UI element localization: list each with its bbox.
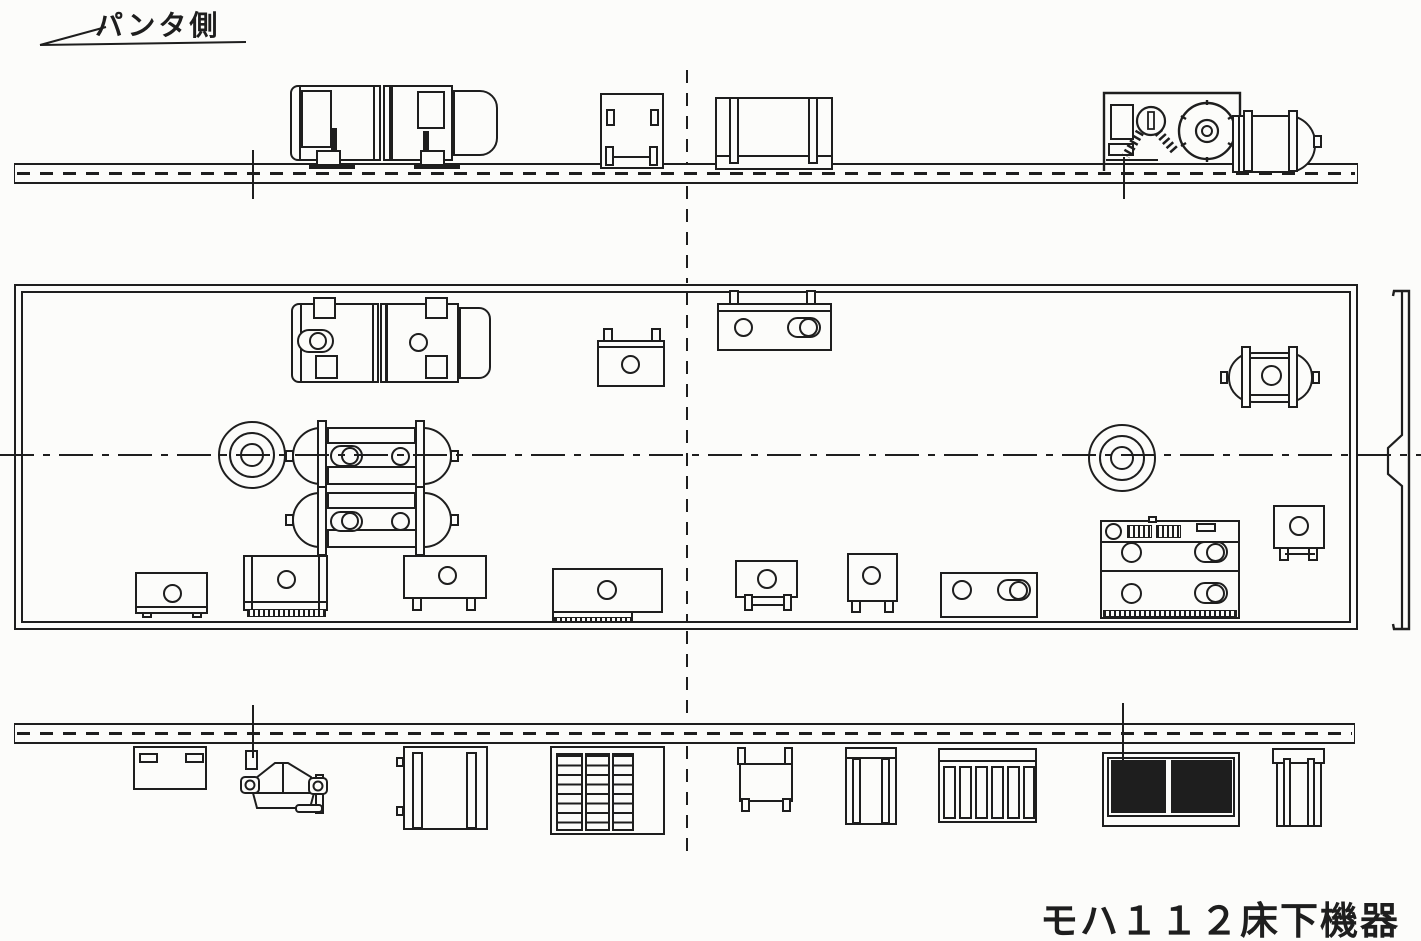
bottom-frameO-tab-br <box>782 798 791 812</box>
plan-boxG-foot-right <box>783 594 792 611</box>
air-tank2-circle <box>391 512 410 531</box>
plan-boxB-base-line <box>245 601 326 603</box>
bogie-center-tick-left-top <box>252 150 254 199</box>
mg-unit-side-left-panel <box>301 90 332 148</box>
air-tank1-saddle-top <box>327 427 416 444</box>
bogie-center-tick-left-bottom <box>252 705 254 758</box>
plan-boxF-circle <box>597 580 617 600</box>
bottom-boxP-strap-right <box>881 758 890 824</box>
bottom-boxK-slot-left <box>139 753 158 763</box>
compressor-plan-hatch-strip <box>1103 610 1237 617</box>
plan-boxI-circle <box>1289 516 1309 536</box>
plan-boxE-oval-circle <box>799 318 818 337</box>
small-tank-nub-right <box>1312 371 1320 384</box>
bottom-grilleN-louver-col1 <box>556 753 583 831</box>
resistor-panel-left <box>1111 760 1166 813</box>
air-tank2-strap2 <box>415 486 425 556</box>
bottom-boxS-strap-left <box>1283 758 1291 827</box>
mg-mount-plate-right <box>414 164 460 169</box>
mg-plan-end-bell <box>459 307 491 379</box>
mg-plan-pad-tl <box>313 297 336 319</box>
compressor-plan-top-tab <box>1148 516 1157 523</box>
mg-plan-oval-port-circle <box>309 332 327 350</box>
plan-boxB-hatch-strip <box>247 609 326 617</box>
small-tank-saddle-bottom <box>1251 394 1289 396</box>
air-tank2-strap1 <box>317 486 327 556</box>
air-tank1-nub-left <box>285 450 294 462</box>
compressor-plan-circle2 <box>1121 583 1142 604</box>
compressor-plan-oval2-circle <box>1206 584 1225 603</box>
small-tank-saddle-top <box>1251 357 1289 359</box>
bottom-grilleQ-slat5 <box>1007 766 1020 819</box>
strapped-box-strap-left <box>729 97 739 164</box>
air-tank1-nub-right <box>450 450 459 462</box>
bottom-grilleN-louver-col2 <box>585 753 610 831</box>
bottom-grilleQ-slat2 <box>959 766 972 819</box>
plan-boxH-circle <box>862 566 881 585</box>
bottom-view-rail-dash <box>17 732 1352 735</box>
mg-unit-side-divider2 <box>383 85 391 161</box>
vertical-centerline-seg5 <box>686 746 688 856</box>
compressor-plan-oval1-circle <box>1206 543 1225 562</box>
mg-mount-plate-left <box>309 164 355 169</box>
plan-boxC-circle <box>438 566 457 585</box>
air-tank2-saddle-top <box>327 492 416 509</box>
plan-boxG-foot-left <box>744 594 753 611</box>
bottom-boxS-strap-right <box>1307 758 1315 827</box>
drawing-title: モハ１１２床下機器 <box>1040 890 1400 941</box>
compressor-plan-circle1 <box>1121 542 1142 563</box>
vertical-centerline-seg4 <box>686 631 688 722</box>
vertical-centerline-seg2 <box>686 186 688 283</box>
bottom-grilleQ-slat4 <box>991 766 1004 819</box>
plan-boxC-foot-right <box>466 597 476 611</box>
compressor-plan-valve-tab <box>1196 523 1216 532</box>
plan-boxC-foot-left <box>412 597 422 611</box>
bottom-grilleQ-slat1 <box>943 766 956 819</box>
bottom-boxK-slot-right <box>185 753 204 763</box>
plan-boxB-circle <box>277 570 296 589</box>
mg-end-view-device <box>233 745 333 817</box>
plan-boxG-circle <box>757 569 777 589</box>
air-tank2-nub-right <box>450 514 459 526</box>
plan-boxF-hatch-strip <box>554 617 631 622</box>
control-box-foot-bar <box>614 156 650 158</box>
mg-unit-side-end-bell <box>453 90 498 156</box>
reservoir-side-strap2 <box>1288 110 1298 172</box>
pantograph-leader-line <box>28 18 253 50</box>
small-tank-circle <box>1261 365 1282 386</box>
mg-unit-side-right-panel <box>417 91 445 129</box>
air-tank1-oval-circle <box>341 447 359 465</box>
bogie-center-tick-right-bottom <box>1122 703 1124 771</box>
reservoir-side-strap1 <box>1243 110 1253 172</box>
plan-boxA-foot-right <box>192 612 202 618</box>
plan-boxH-foot-right <box>884 600 894 613</box>
plan-boxD-top-line <box>599 346 663 348</box>
mg-plan-pad-bl <box>315 355 338 379</box>
bottom-grilleQ-slat6 <box>1023 766 1035 819</box>
drawing-sheet: パンタ側 モハ１１２床下機器 <box>0 0 1421 941</box>
bottom-grilleQ-slat3 <box>975 766 988 819</box>
mg-unit-side-divider1 <box>373 85 381 161</box>
control-box-slot-left <box>606 109 615 126</box>
air-tank2-nub-left <box>285 514 294 526</box>
plan-boxE-top-line <box>719 310 830 312</box>
resistor-panel-right <box>1171 760 1232 813</box>
plan-boxD-circle <box>621 355 640 374</box>
bottom-frameO-tab-bl <box>741 798 750 812</box>
small-tank-strap2 <box>1288 346 1298 408</box>
bottom-boxM-strap-left <box>412 752 423 829</box>
small-tank-nub-left <box>1220 371 1228 384</box>
reservoir-side-cap-line <box>1238 117 1240 171</box>
bottom-frameO <box>739 763 793 802</box>
bottom-grilleN-louver-col3 <box>612 753 634 831</box>
plan-boxH-foot-left <box>851 600 861 613</box>
plan-boxA-foot-left <box>142 612 152 618</box>
mg-plan-divider1 <box>372 303 379 383</box>
air-tank1-circle <box>391 447 410 466</box>
plan-boxG-foot-bar <box>751 604 785 606</box>
plan-boxJ-oval-circle <box>1009 581 1028 600</box>
plan-boxA-circle <box>163 584 182 603</box>
car-end-sill-bracket <box>1380 285 1421 637</box>
air-tank2-oval-circle <box>341 512 359 530</box>
horizontal-centerline <box>0 454 1421 456</box>
mg-plan-pad-tr <box>425 297 448 319</box>
vertical-centerline-seg1 <box>686 70 688 163</box>
brake-cylinder-ring-inner-right <box>1110 446 1134 470</box>
compressor-plan-divider <box>1102 570 1238 572</box>
reservoir-side-fitting <box>1313 135 1322 148</box>
compressor-plan-coil1 <box>1127 525 1152 538</box>
mg-plan-port-circle <box>409 333 428 352</box>
control-box-foot-right <box>649 146 658 166</box>
bottom-grilleQ-header-line <box>940 760 1035 762</box>
control-box-slot-right <box>650 109 659 126</box>
plan-boxJ-circle <box>952 580 972 600</box>
small-tank-strap1 <box>1241 346 1251 408</box>
air-tank1-saddle-bottom <box>327 466 417 485</box>
compressor-side-view <box>1098 88 1248 173</box>
plan-boxI-foot-bar <box>1285 553 1315 555</box>
compressor-plan-hook <box>1105 523 1122 540</box>
strapped-box-strap-right <box>808 97 818 164</box>
control-box-foot-left <box>605 146 614 166</box>
bogie-center-tick-right-top <box>1123 157 1125 199</box>
mg-plan-pad-br <box>425 355 448 379</box>
plan-boxE-circle <box>734 318 753 337</box>
bottom-boxP-strap-left <box>852 758 861 824</box>
compressor-plan-coil2 <box>1156 525 1181 538</box>
plan-boxA-base-line <box>137 606 206 608</box>
bottom-boxM-strap-right <box>466 752 477 829</box>
